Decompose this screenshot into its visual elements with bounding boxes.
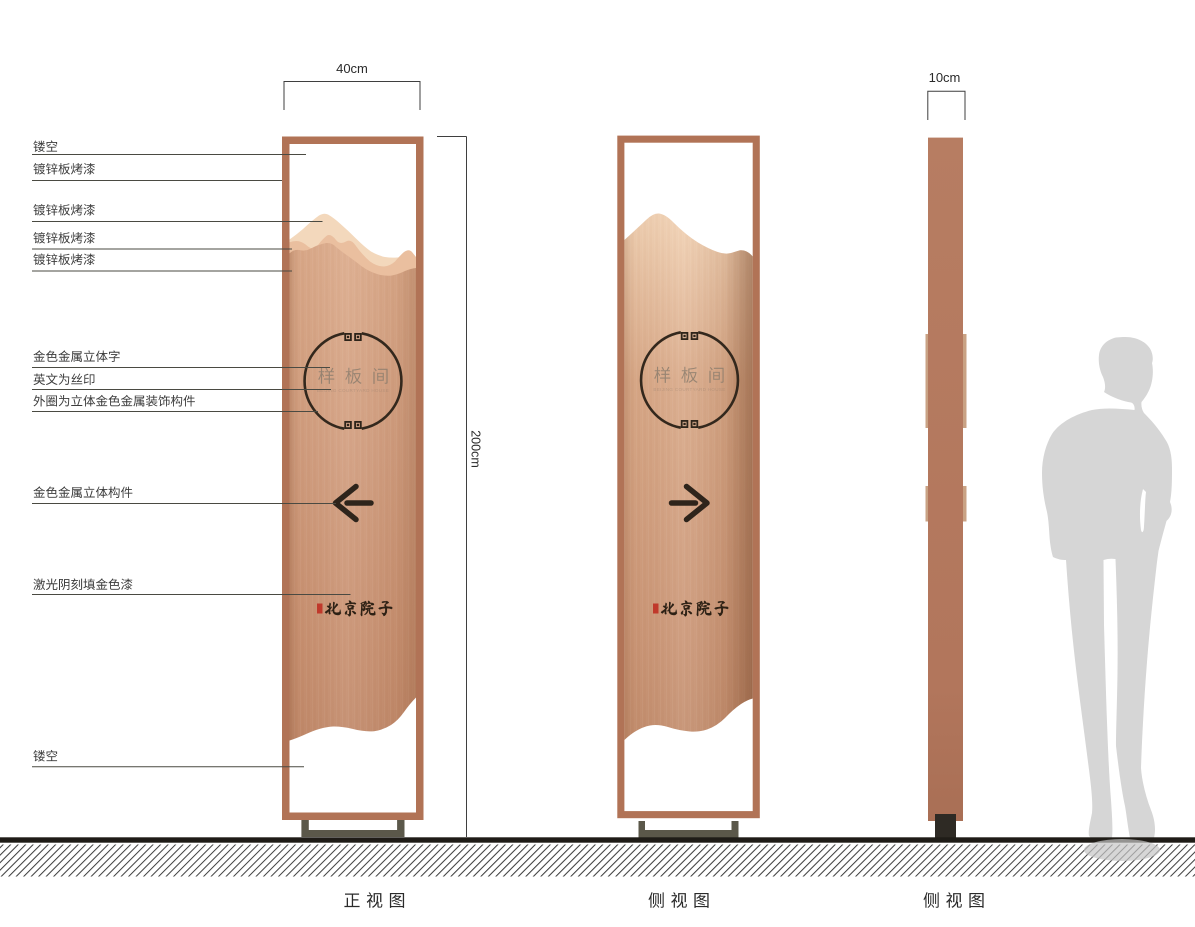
svg-text:BEIJING COURTYARD HOUSE: BEIJING COURTYARD HOUSE <box>317 388 389 393</box>
svg-text:10cm: 10cm <box>929 70 961 85</box>
svg-text:200cm: 200cm <box>469 430 483 468</box>
svg-text:BEIJING COURTYARD HOUSE: BEIJING COURTYARD HOUSE <box>653 387 725 392</box>
svg-text:40cm: 40cm <box>336 61 368 76</box>
